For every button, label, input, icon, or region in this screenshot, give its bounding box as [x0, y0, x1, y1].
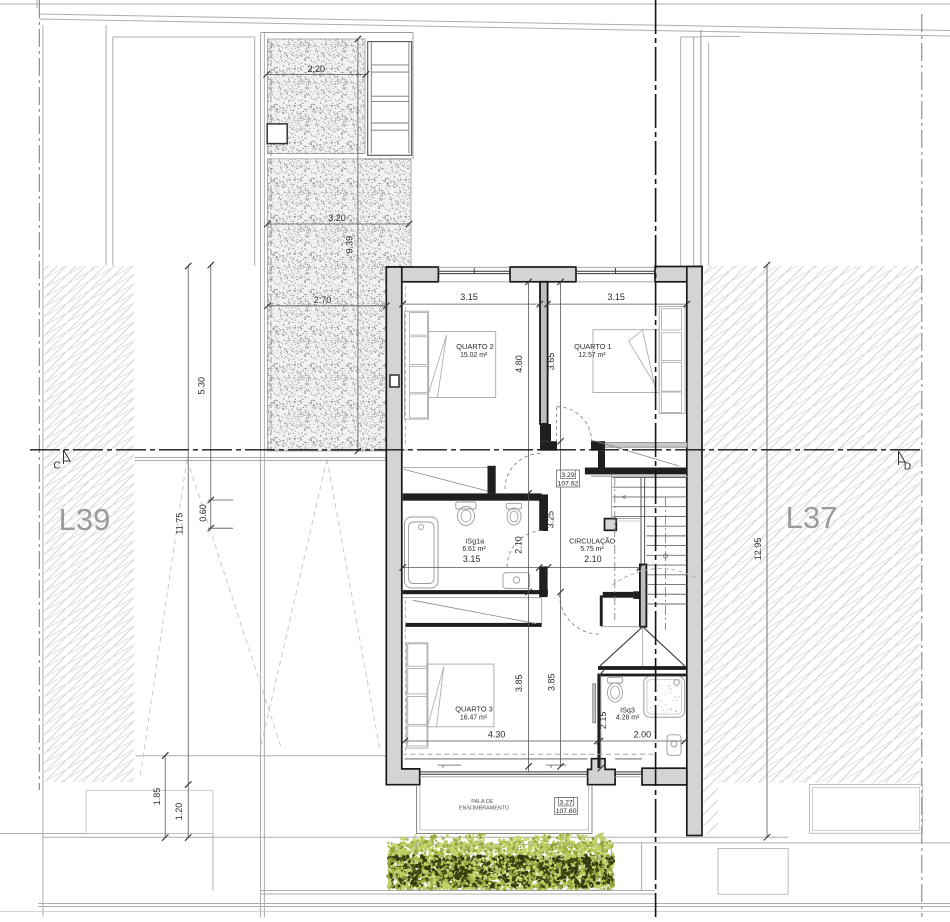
svg-text:12.95: 12.95 [753, 538, 763, 561]
svg-text:2.20: 2.20 [308, 64, 326, 74]
svg-text:4.30: 4.30 [488, 730, 506, 740]
svg-text:2.00: 2.00 [634, 730, 652, 740]
svg-text:1.20: 1.20 [174, 803, 184, 821]
svg-text:3.65: 3.65 [546, 353, 556, 371]
svg-text:L39: L39 [59, 502, 111, 537]
svg-text:1.85: 1.85 [152, 788, 162, 806]
svg-text:3.85: 3.85 [514, 674, 524, 692]
svg-text:4.80: 4.80 [514, 355, 524, 373]
svg-text:3.20: 3.20 [328, 213, 346, 223]
svg-text:16.47 m²: 16.47 m² [460, 714, 488, 721]
svg-text:CIRCULAÇÃO: CIRCULAÇÃO [569, 537, 615, 546]
svg-text:107.62: 107.62 [558, 481, 579, 488]
svg-text:3.15: 3.15 [463, 554, 481, 564]
svg-text:2.70: 2.70 [314, 295, 332, 305]
svg-text:12.57 m²: 12.57 m² [578, 352, 606, 359]
svg-text:L37: L37 [786, 500, 838, 535]
svg-text:2.10: 2.10 [514, 536, 524, 554]
svg-text:ISg1a: ISg1a [465, 537, 484, 546]
svg-text:3.15: 3.15 [607, 292, 625, 302]
svg-text:9.39: 9.39 [344, 236, 354, 254]
svg-text:D: D [904, 462, 911, 473]
svg-text:3.27: 3.27 [559, 799, 572, 806]
svg-text:3.15: 3.15 [460, 292, 478, 302]
svg-text:2.10: 2.10 [584, 554, 602, 564]
svg-text:3.29: 3.29 [561, 472, 574, 479]
svg-text:107.60: 107.60 [556, 808, 577, 815]
svg-text:15.02 m²: 15.02 m² [460, 352, 488, 359]
svg-text:5.30: 5.30 [197, 377, 207, 395]
svg-text:11.75: 11.75 [175, 513, 185, 535]
svg-text:3.85: 3.85 [547, 673, 557, 691]
svg-text:ENSOMBRAMENTO: ENSOMBRAMENTO [459, 805, 509, 811]
svg-text:ISq3: ISq3 [620, 706, 635, 715]
svg-text:QUARTO 3: QUARTO 3 [455, 705, 493, 714]
svg-text:3.25: 3.25 [545, 511, 555, 529]
svg-text:QUARTO 2: QUARTO 2 [456, 342, 494, 351]
svg-text:5.75 m²: 5.75 m² [580, 546, 604, 553]
svg-text:C: C [53, 461, 60, 472]
svg-text:6.61 m²: 6.61 m² [462, 546, 486, 553]
svg-text:4.28 m²: 4.28 m² [616, 715, 640, 722]
svg-text:QUARTO 1: QUARTO 1 [574, 342, 612, 351]
svg-text:2.15: 2.15 [598, 712, 608, 730]
svg-text:0.60: 0.60 [198, 504, 208, 522]
svg-text:PALA DE: PALA DE [471, 799, 493, 805]
